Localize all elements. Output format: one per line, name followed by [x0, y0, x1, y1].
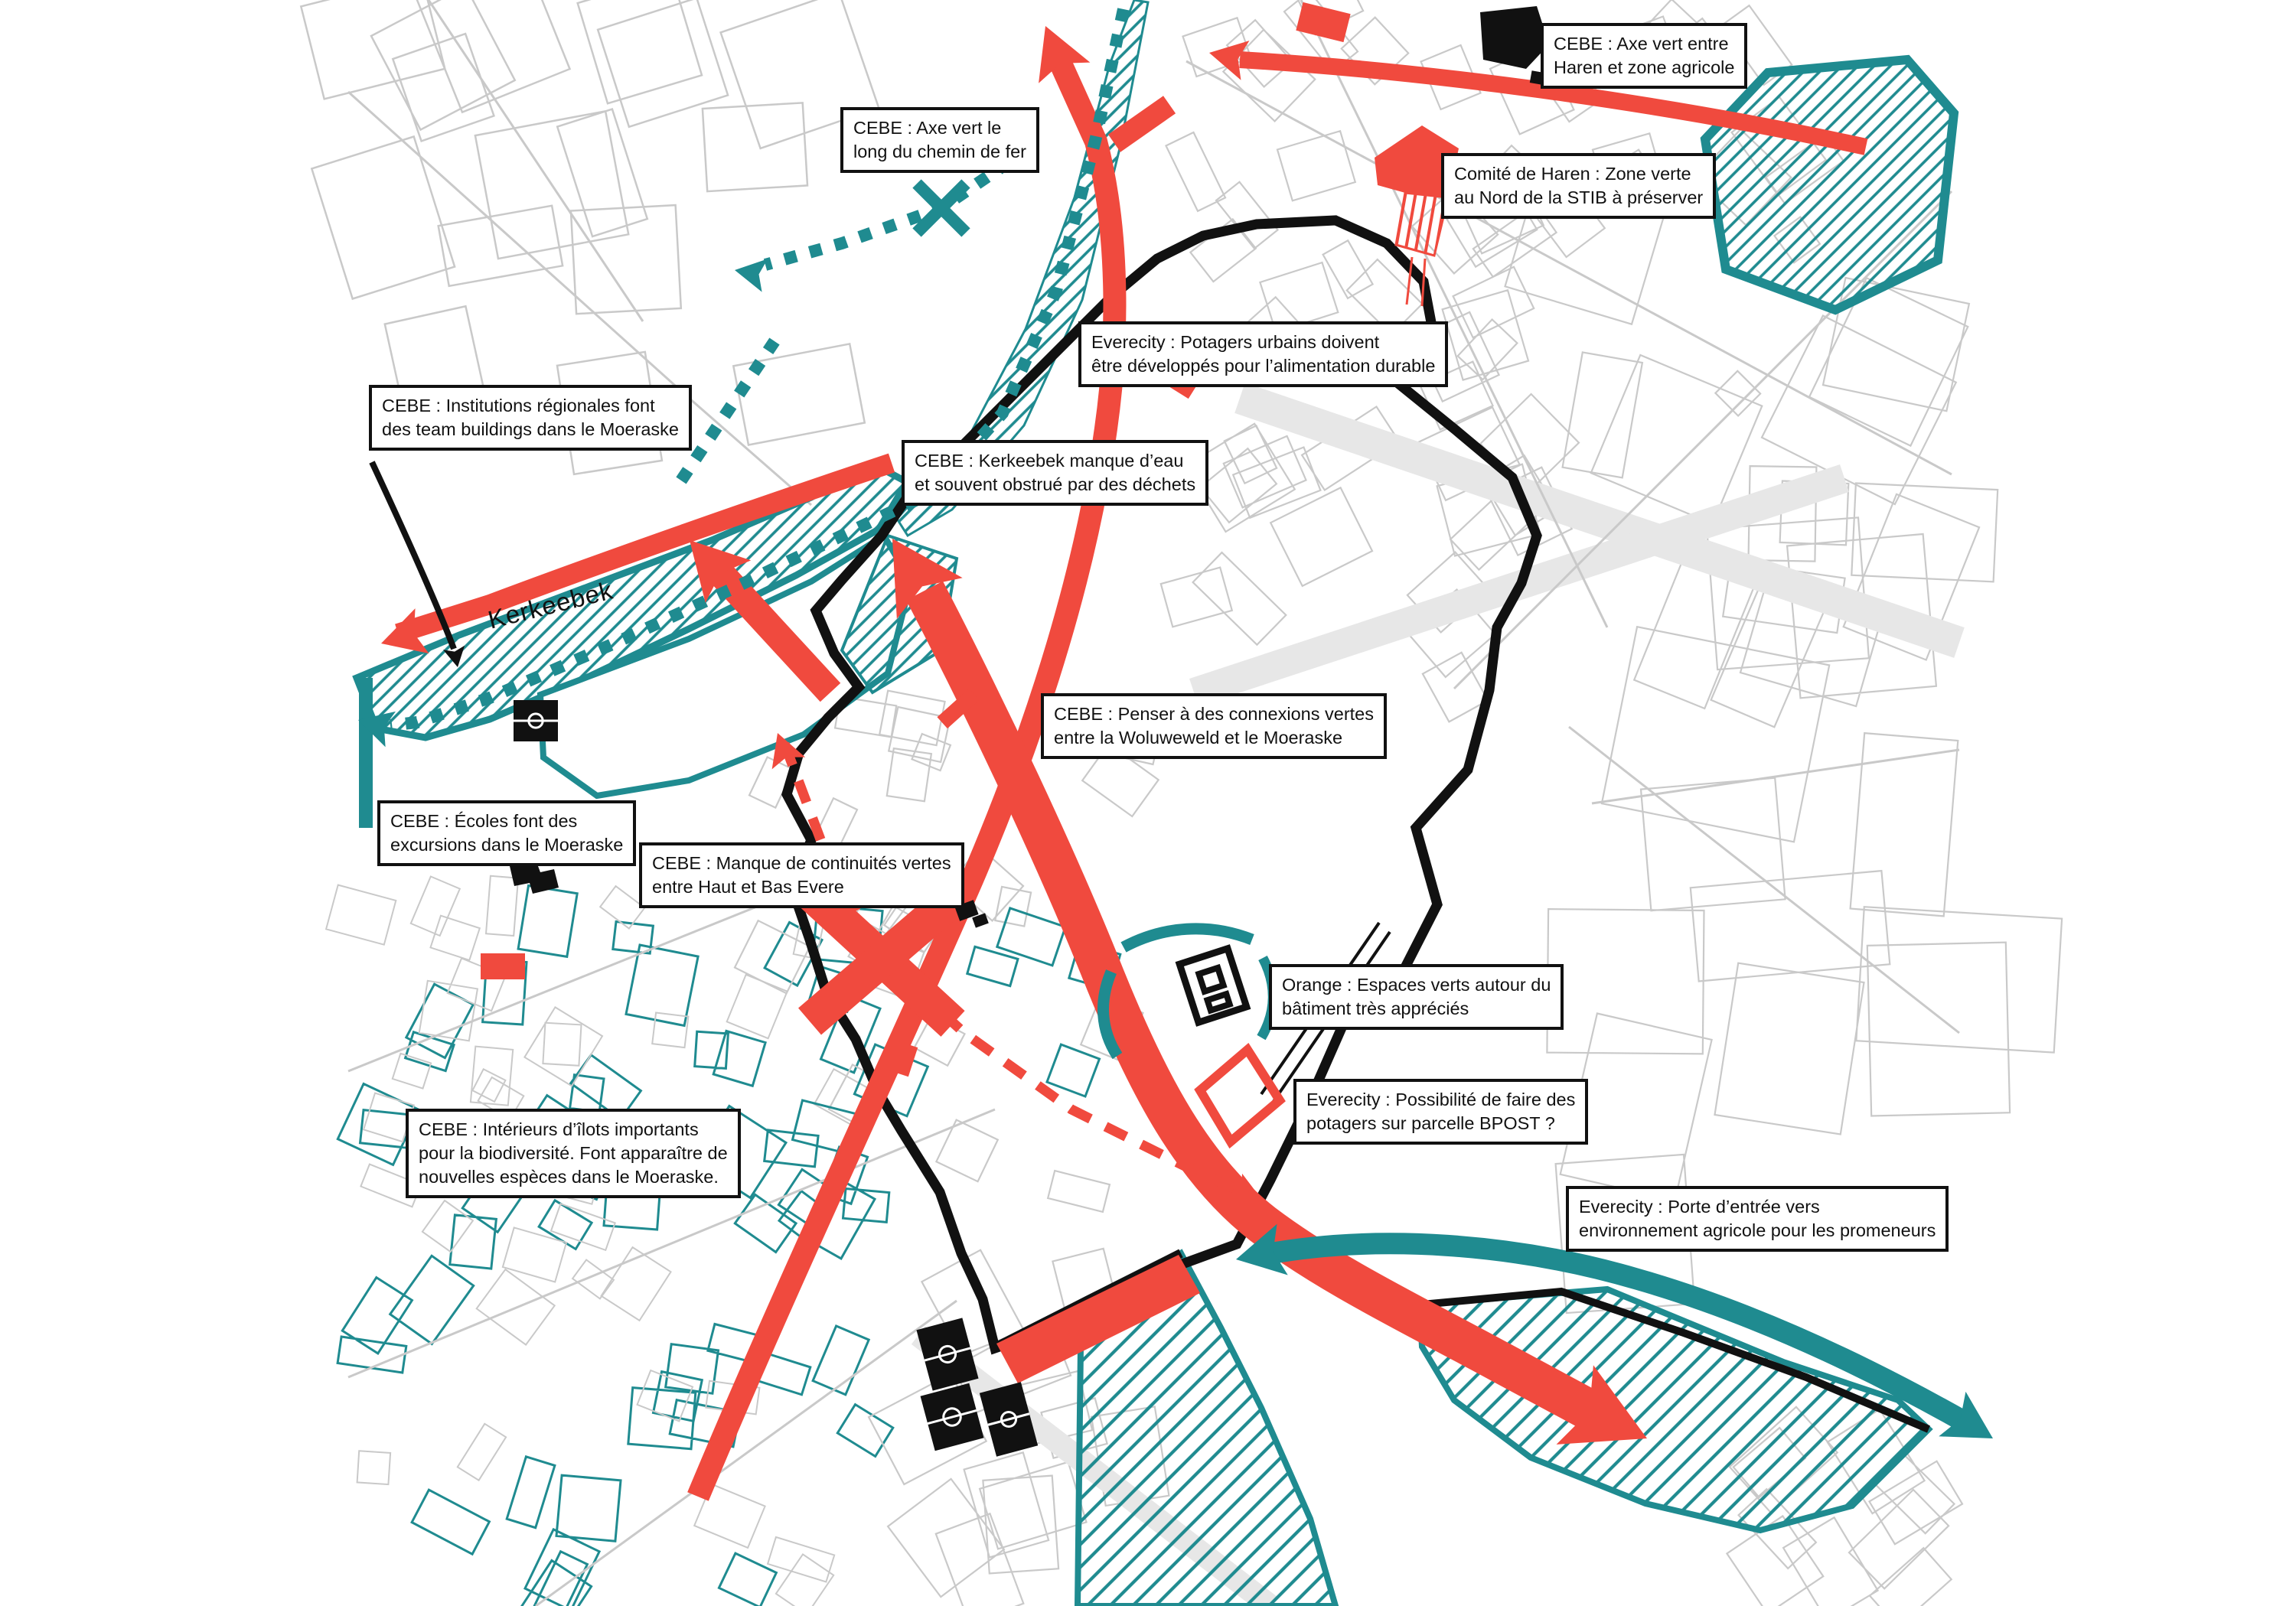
annotation-everecity-porte-entree: Everecity : Porte d’entrée vers environn… — [1566, 1186, 1949, 1252]
sports-field-icon — [980, 1382, 1038, 1457]
annotation-cebe-ecoles: CEBE : Écoles font des excursions dans l… — [377, 800, 636, 866]
sports-field-icon — [921, 1383, 984, 1451]
annotation-cebe-interieurs-ilots: CEBE : Intérieurs d’îlots importants pou… — [406, 1109, 741, 1198]
annotation-comite-haren-stib: Comité de Haren : Zone verte au Nord de … — [1441, 153, 1716, 219]
sports-field-icon — [514, 700, 558, 741]
annotation-everecity-bpost: Everecity : Possibilité de faire des pot… — [1293, 1079, 1588, 1145]
map-canvas — [0, 0, 2296, 1606]
annotation-cebe-kerkeebek-eau: CEBE : Kerkeebek manque d’eau et souvent… — [902, 440, 1208, 506]
orange-building — [1179, 949, 1246, 1022]
teal-cross-marker — [917, 184, 966, 233]
annotation-orange-espaces-verts: Orange : Espaces verts autour du bâtimen… — [1269, 964, 1564, 1030]
annotation-cebe-connexions-vertes: CEBE : Penser à des connexions vertes en… — [1041, 693, 1387, 759]
green-zone-haren — [1705, 60, 1954, 310]
sports-field-icon — [916, 1318, 978, 1390]
site-boundary-line — [787, 220, 1537, 1348]
annotation-axe-vert-chemin-de-fer: CEBE : Axe vert le long du chemin de fer — [840, 107, 1039, 173]
field-bottom-right — [1420, 1289, 1929, 1530]
annotation-cebe-continuites: CEBE : Manque de continuités vertes entr… — [639, 842, 964, 908]
annotation-cebe-institutions: CEBE : Institutions régionales font des … — [369, 385, 692, 451]
participatory-map: Kerkeebek CEBE : Axe vert entre Haren et… — [0, 0, 2296, 1606]
bpost-parcel-outline — [1200, 1050, 1280, 1142]
annotation-everecity-potagers: Everecity : Potagers urbains doivent êtr… — [1078, 321, 1448, 387]
annotation-axe-vert-haren: CEBE : Axe vert entre Haren et zone agri… — [1541, 23, 1747, 89]
